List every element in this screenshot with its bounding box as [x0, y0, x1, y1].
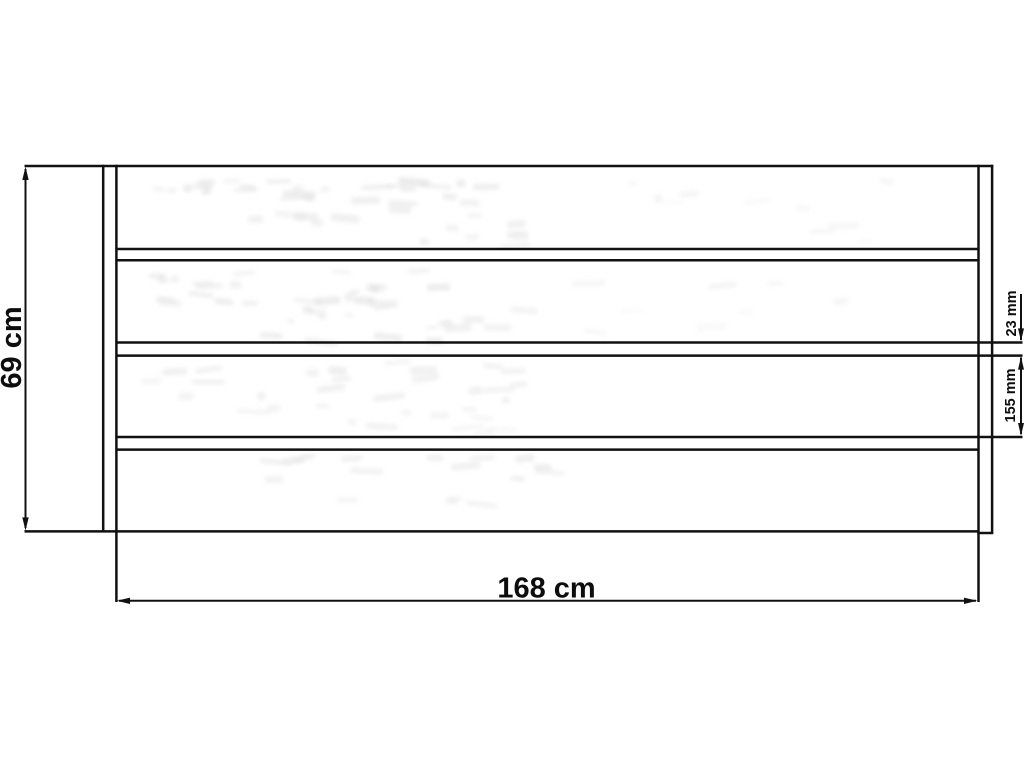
svg-text:155 mm: 155 mm [1003, 368, 1019, 422]
svg-text:23 mm: 23 mm [1004, 291, 1020, 337]
svg-text:69 cm: 69 cm [0, 306, 28, 388]
svg-text:168 cm: 168 cm [497, 573, 595, 605]
